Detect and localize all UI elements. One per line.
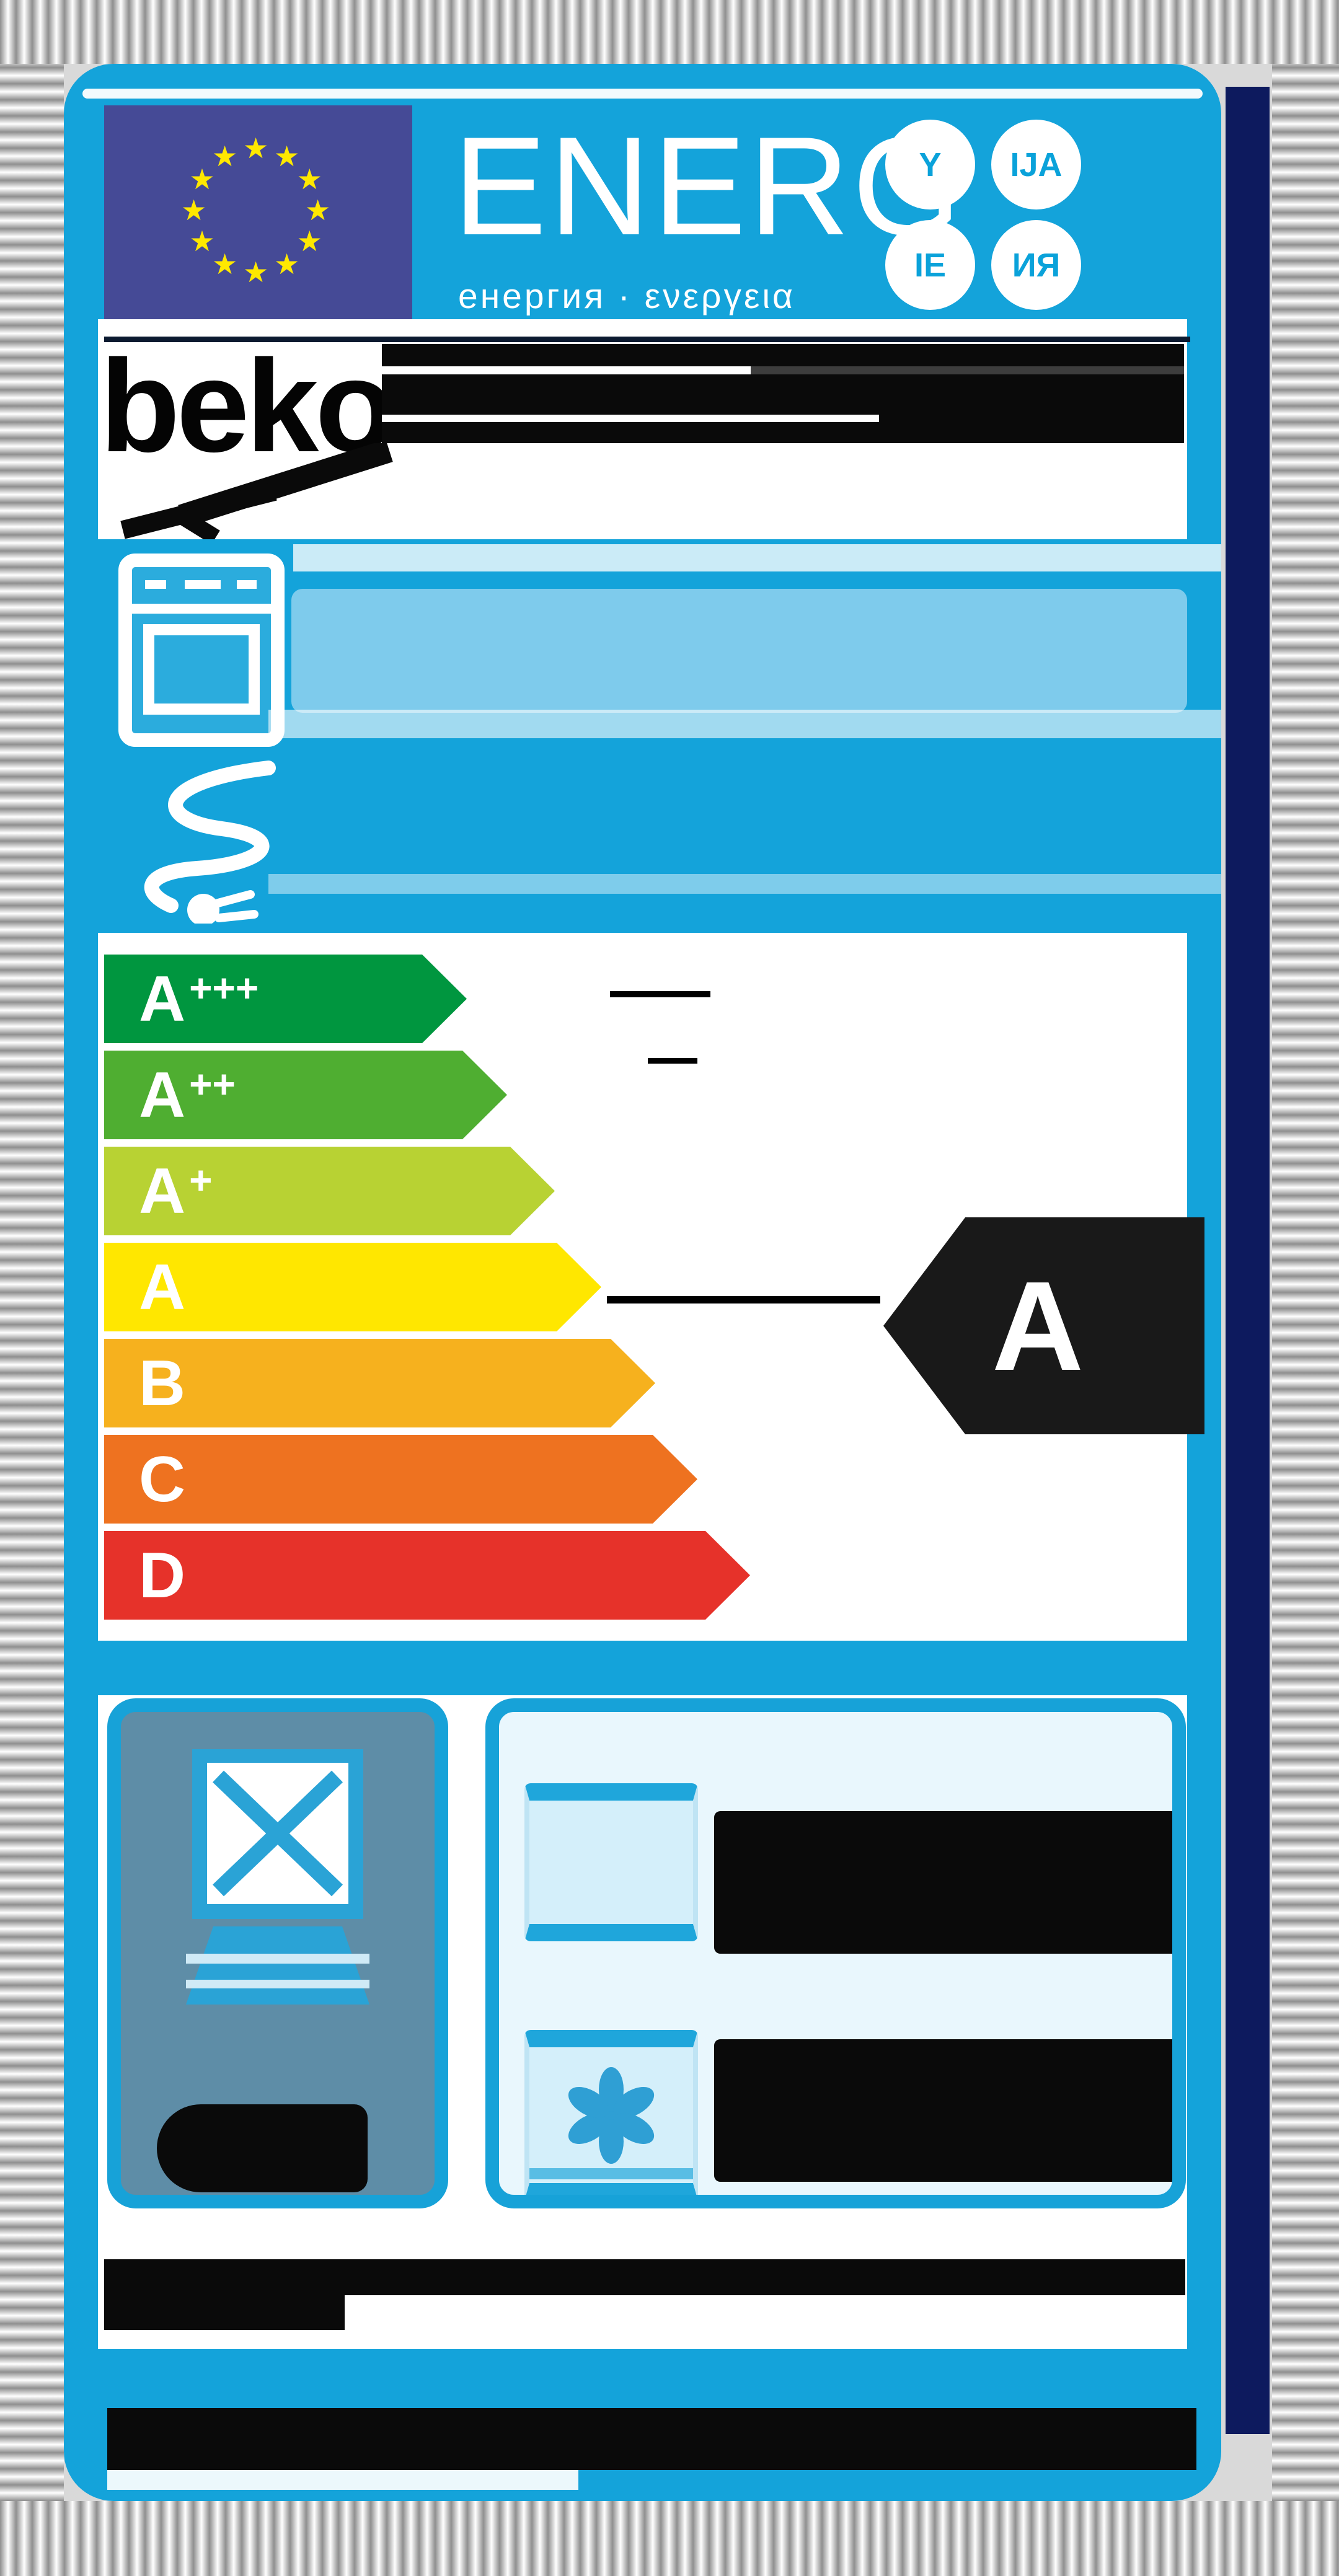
volume-box — [107, 1698, 448, 2208]
eu-star-icon: ★ — [189, 227, 214, 255]
energy-class-letter: A — [139, 967, 185, 1031]
language-suffix-bubble: ИЯ — [991, 220, 1081, 310]
background-stripes-right — [1272, 64, 1339, 2501]
oven-front-icon — [115, 552, 288, 749]
eu-star-icon: ★ — [212, 142, 237, 170]
energy-class-arrow: C — [104, 1435, 697, 1524]
redacted-footnote-line-1 — [104, 2259, 1185, 2295]
energy-class-pluses: + — [189, 1157, 212, 1203]
eu-star-icon: ★ — [274, 142, 299, 170]
eu-star-icon: ★ — [297, 227, 322, 255]
eu-star-icon: ★ — [189, 165, 214, 193]
energy-class-arrow: A + — [104, 1147, 555, 1235]
energy-class-letter: C — [139, 1447, 185, 1512]
energy-class-letter: D — [139, 1543, 185, 1608]
language-suffix-bubble: Y — [885, 120, 975, 210]
rating-letter: A — [992, 1263, 1084, 1390]
language-suffix-bubbles: Y IJA IE ИЯ — [885, 120, 1084, 312]
oven-volume-icon — [186, 1749, 369, 2016]
language-suffix-bubble: IE — [885, 220, 975, 310]
eu-star-icon: ★ — [243, 134, 268, 162]
energy-class-letter: A — [139, 1063, 185, 1127]
header-separator-line — [82, 89, 1203, 99]
redacted-footnote-line-2 — [104, 2295, 345, 2330]
energy-class-arrow: B — [104, 1339, 655, 1427]
energy-class-scale: A +++ A ++ A + A B — [104, 955, 848, 1627]
fan-forced-convection-icon — [524, 2030, 698, 2200]
info-panel-rect — [291, 589, 1187, 713]
navy-edge-bar — [1226, 87, 1270, 2434]
eu-star-icon: ★ — [297, 165, 322, 193]
artifact-line — [607, 1296, 880, 1303]
screenshot: ★★★★★★★★★★★★ ENERG енергия · ενεργεια Y … — [0, 0, 1339, 2576]
artifact-line — [610, 991, 710, 997]
redacted-regulation-text — [107, 2408, 1196, 2470]
eu-star-icon: ★ — [243, 258, 268, 286]
energy-class-arrow: A — [104, 1243, 601, 1331]
background-stripes-bottom — [0, 2501, 1339, 2576]
redaction-gap-line — [382, 366, 751, 374]
redacted-volume-value — [157, 2104, 368, 2192]
separator-band — [64, 1641, 1221, 1695]
icon-bottom-bar — [529, 2168, 693, 2179]
pictogram-band — [64, 539, 1221, 933]
redaction-gap-line — [751, 366, 1184, 374]
eu-star-icon: ★ — [212, 250, 237, 278]
scanline-artifact — [268, 874, 1221, 894]
eu-star-icon: ★ — [274, 250, 299, 278]
eu-star-icon: ★ — [181, 196, 206, 224]
power-cord-plug-icon — [110, 759, 296, 924]
redacted-model-text — [382, 344, 1184, 443]
redaction-gap-line — [382, 415, 879, 422]
energy-class-arrow: A +++ — [104, 955, 467, 1043]
background-stripes-top — [0, 0, 1339, 64]
regulation-underline — [107, 2470, 578, 2490]
energy-class-arrow: A ++ — [104, 1051, 507, 1139]
eu-star-icon: ★ — [305, 196, 330, 224]
scanline-artifact — [268, 710, 1221, 738]
energy-class-letter: A — [139, 1159, 185, 1224]
background-stripes-left — [0, 64, 64, 2501]
artifact-line — [648, 1058, 697, 1064]
energy-class-letter: A — [139, 1255, 185, 1320]
energy-class-pluses: ++ — [189, 1061, 236, 1107]
energy-class-letter: B — [139, 1351, 185, 1416]
redacted-conventional-consumption-value — [714, 1811, 1185, 1954]
energ-subtitle: енергия · ενεργεια — [458, 276, 795, 317]
brand-swoosh-artifact — [89, 443, 399, 542]
eu-flag: ★★★★★★★★★★★★ — [104, 105, 412, 320]
redacted-fan-consumption-value — [714, 2039, 1185, 2182]
energy-class-arrow: D — [104, 1531, 750, 1620]
language-suffix-bubble: IJA — [991, 120, 1081, 210]
consumption-box — [485, 1698, 1186, 2208]
conventional-heating-icon — [524, 1783, 698, 1941]
scanline-artifact — [293, 544, 1221, 571]
energy-label: ★★★★★★★★★★★★ ENERG енергия · ενεργεια Y … — [64, 64, 1221, 2501]
energy-class-pluses: +++ — [189, 965, 259, 1011]
